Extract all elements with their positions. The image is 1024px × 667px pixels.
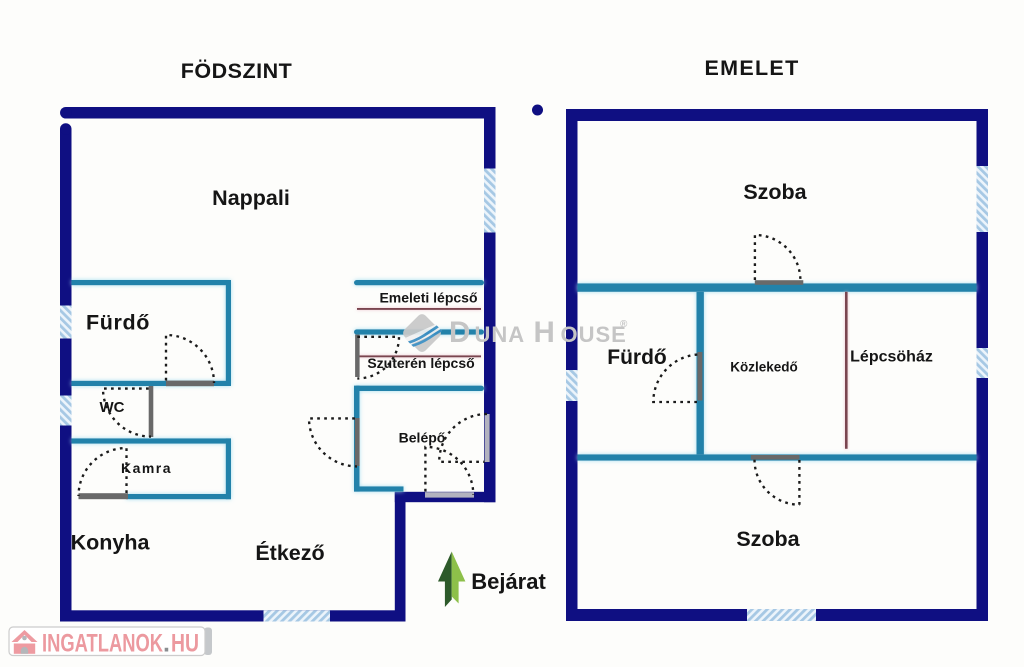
svg-text:D: D [449, 316, 470, 349]
svg-text:Belépő: Belépő [399, 430, 446, 446]
svg-text:Lépcsöház: Lépcsöház [850, 349, 933, 366]
svg-text:Szoba: Szoba [736, 527, 800, 551]
svg-text:OUSE: OUSE [561, 322, 627, 347]
svg-text:Emeleti lépcső: Emeleti lépcső [379, 290, 477, 306]
svg-text:Kamra: Kamra [121, 460, 172, 476]
svg-text:Étkező: Étkező [255, 540, 324, 565]
svg-text:Szoba: Szoba [743, 180, 807, 204]
svg-text:Konyha: Konyha [71, 531, 151, 555]
svg-text:H: H [534, 316, 555, 349]
svg-text:Nappali: Nappali [212, 186, 290, 210]
svg-text:®: ® [620, 319, 628, 330]
svg-text:Bejárat: Bejárat [471, 569, 546, 594]
svg-text:UNA: UNA [475, 322, 526, 347]
svg-text:Fürdő: Fürdő [86, 311, 150, 335]
svg-text:Fürdő: Fürdő [607, 346, 666, 369]
svg-text:Közlekedő: Közlekedő [730, 360, 798, 375]
svg-text:FÖDSZINT: FÖDSZINT [181, 58, 293, 83]
svg-text:WC: WC [100, 399, 125, 416]
svg-text:INGATLANOK: INGATLANOK [42, 630, 163, 658]
svg-text:HU: HU [171, 630, 199, 658]
svg-text:EMELET: EMELET [705, 56, 800, 80]
svg-text:.: . [163, 630, 170, 658]
svg-text:Szuterén lépcső: Szuterén lépcső [367, 355, 474, 371]
